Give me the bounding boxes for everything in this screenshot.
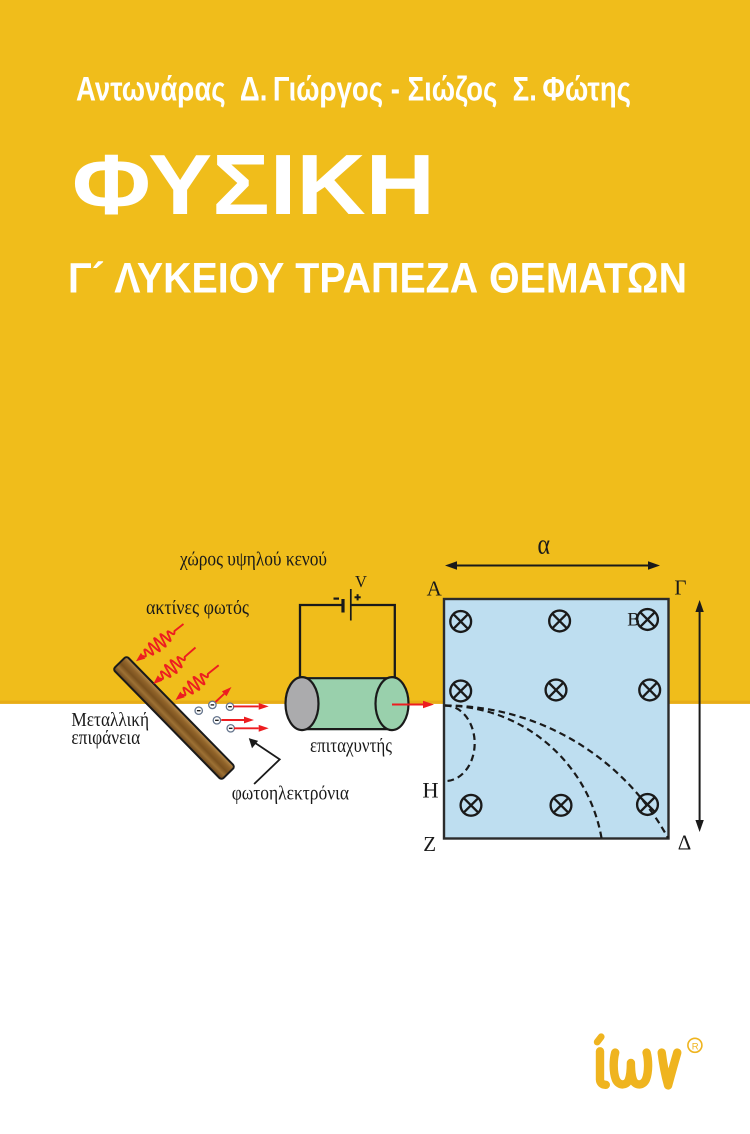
svg-text:V: V — [355, 572, 367, 591]
svg-text:ΦΥΣΙΚΗ: ΦΥΣΙΚΗ — [72, 137, 435, 233]
svg-text:Α: Α — [427, 576, 443, 600]
svg-text:R: R — [692, 1041, 699, 1052]
svg-text:χώρος υψηλού κενού: χώρος υψηλού κενού — [179, 549, 327, 571]
svg-text:Δ: Δ — [678, 831, 692, 855]
svg-text:Β: Β — [627, 610, 640, 631]
svg-text:Αντωνάρας Δ. Γιώργος - Σιώζος: Αντωνάρας Δ. Γιώργος - Σιώζος Σ. Φώτης — [76, 71, 631, 109]
svg-text:Η: Η — [422, 777, 438, 802]
svg-text:φωτοηλεκτρόνια: φωτοηλεκτρόνια — [232, 783, 350, 805]
svg-text:Γ´ ΛΥΚΕΙΟΥ ΤΡΑΠΕΖΑ ΘΕΜΑΤΩΝ: Γ´ ΛΥΚΕΙΟΥ ΤΡΑΠΕΖΑ ΘΕΜΑΤΩΝ — [68, 254, 687, 301]
svg-text:Ζ: Ζ — [423, 832, 436, 856]
svg-text:α: α — [538, 529, 551, 561]
svg-text:ακτίνες φωτός: ακτίνες φωτός — [146, 597, 249, 619]
svg-text:Γ: Γ — [674, 575, 686, 599]
svg-text:επιφάνεια: επιφάνεια — [71, 727, 140, 749]
svg-text:επιταχυντής: επιταχυντής — [310, 735, 392, 757]
